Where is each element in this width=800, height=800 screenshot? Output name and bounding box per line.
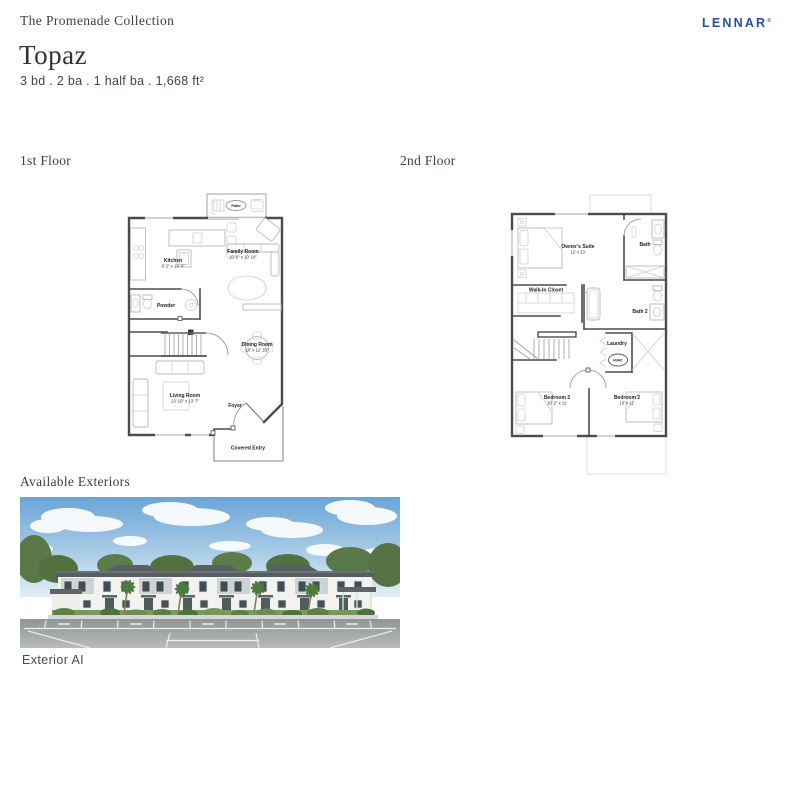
first-floor-plan: Patio Kitchen 8' 2" x 13' 4" [127, 192, 291, 472]
room-label-covered-entry: Covered Entry [231, 446, 265, 452]
registered-mark: ® [767, 18, 771, 24]
room-dims-kitchen: 8' 2" x 13' 4" [162, 264, 185, 269]
room-label-bath-2: Bath 2 [632, 309, 648, 315]
laundry-hvac [600, 333, 664, 372]
room-label-powder: Powder [157, 303, 175, 309]
room-dims-dining-room: 10' x 12' 10" [246, 348, 269, 353]
room-label-patio: Patio [231, 204, 241, 208]
exterior-photo[interactable] [20, 497, 400, 648]
bath-2 [584, 285, 666, 329]
stairs-2 [512, 332, 576, 360]
room-label-walk-in-closet: Walk-In Closet [529, 288, 564, 294]
room-label-bath: Bath [639, 242, 650, 248]
room-dims-owners-suite: 12' x 13' [570, 250, 586, 255]
patio-ghost-outline [590, 195, 651, 214]
available-exteriors-label: Available Exteriors [20, 474, 130, 490]
second-floor-plan: Owner's Suite 12' x 13' Bath Walk-In Clo… [510, 192, 670, 484]
room-dims-living-room: 13' 10" x 13' 7" [171, 399, 199, 404]
collection-title: The Promenade Collection [20, 13, 174, 29]
room-label-laundry: Laundry [607, 341, 627, 347]
floorplan-page: The Promenade Collection LENNAR® Topaz 3… [0, 0, 800, 800]
patio-area: Patio [207, 194, 266, 217]
room-label-hvac: HVAC [613, 359, 623, 363]
room-dims-bedroom-2: 10' x 11' [619, 401, 634, 406]
owners-suite-furniture [518, 219, 562, 278]
stairs [129, 330, 228, 357]
kitchen-fixtures [131, 223, 237, 280]
plan-specs: 3 bd . 2 ba . 1 half ba . 1,668 ft² [20, 74, 204, 88]
first-floor-label: 1st Floor [20, 153, 71, 169]
lennar-logo: LENNAR® [702, 16, 771, 30]
parking-lot [20, 619, 400, 648]
plan-name: Topaz [19, 40, 87, 71]
entry-ghost-outline [587, 436, 666, 474]
hall-doors [570, 368, 606, 388]
room-dims-family-room: 10' 6" x 10' 10" [229, 255, 257, 260]
exterior-caption: Exterior AI [22, 653, 84, 667]
second-floor-label: 2nd Floor [400, 153, 456, 169]
room-dims-bedroom-3: 10' 2" x 11' [547, 401, 567, 406]
